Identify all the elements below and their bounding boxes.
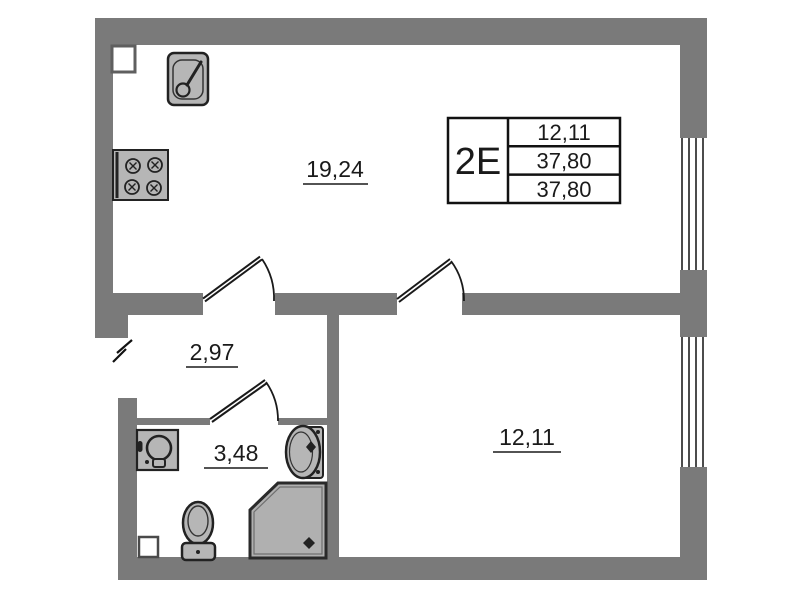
window-icon (682, 138, 703, 270)
room-area-label-bathroom: 3,48 (214, 440, 259, 466)
entry-break-icon (113, 340, 132, 362)
door-swing-icon (210, 380, 278, 422)
wall-divider (327, 315, 339, 557)
duct-notch-bottom-left (139, 537, 158, 557)
toilet-icon (182, 502, 215, 560)
unit-table-value: 37,80 (536, 149, 591, 174)
wall-middle-a (95, 293, 203, 315)
wall-bathroom-left (118, 398, 137, 580)
shower-icon (250, 483, 326, 558)
door-swing-icon (203, 257, 274, 302)
room-area-label-living: 19,24 (306, 156, 364, 182)
kitchen-sink-icon (168, 53, 208, 105)
wall-right-middle (680, 270, 707, 337)
room-area-label-hallway: 2,97 (190, 339, 235, 365)
washing-machine-icon (137, 430, 178, 470)
wall-middle-b (275, 293, 397, 315)
wall-middle-c (462, 293, 680, 315)
unit-code: 2E (455, 141, 501, 183)
unit-table-value: 12,11 (537, 120, 590, 145)
wall-bathroom-top-a (137, 418, 210, 425)
floor-plan-svg: 2E 12,11 37,80 37,80 19,24 2,97 3,48 12,… (0, 0, 799, 600)
unit-info-table: 2E 12,11 37,80 37,80 (448, 118, 620, 203)
door-swing-icon (397, 259, 464, 302)
window-icon (682, 337, 703, 467)
wall-right-upper (680, 18, 707, 138)
wall-entry-stub (95, 315, 128, 338)
duct-notch-top-left (112, 46, 135, 72)
room-area-label-bedroom: 12,11 (499, 424, 555, 450)
wall-bathroom-top-b (278, 418, 327, 425)
wall-top (95, 18, 707, 45)
bathroom-sink-icon (286, 426, 323, 478)
wall-left (95, 18, 113, 338)
floor-plan: 2E 12,11 37,80 37,80 19,24 2,97 3,48 12,… (0, 0, 799, 600)
unit-table-value: 37,80 (536, 177, 591, 202)
stove-icon (113, 150, 168, 200)
